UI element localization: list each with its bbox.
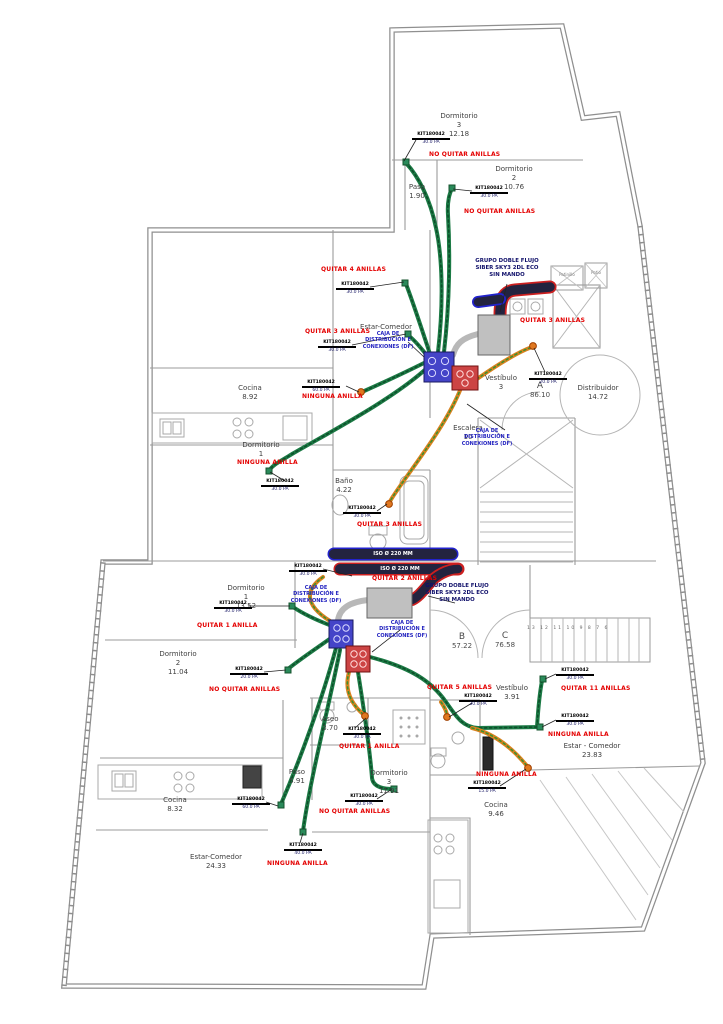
ring-annotation: NO QUITAR ANILLAS (319, 808, 390, 815)
ring-annotation: QUITAR 4 ANILLAS (321, 266, 386, 273)
pressure-tag: KIT18004260.0 PA (302, 380, 340, 393)
shaft-label: Patio (591, 270, 601, 275)
pressure-tag: KIT18004230.0 PA (345, 794, 383, 807)
distribution-box-label: CAJA DEDISTRIBUCIÓN ECONEXIONES (DF) (291, 585, 342, 604)
pressure-tag: KIT18004215.0 PA (468, 781, 506, 794)
pressure-tag: KIT18004230.0 PA (556, 668, 594, 681)
room-label-estar-b: Estar-Comedor24.33 (190, 853, 242, 871)
room-label-paso-a: Paso1.90 (409, 183, 425, 201)
pressure-tag: KIT18004230.0 PA (289, 564, 327, 577)
room-label-paso-b: Paso5.91 (289, 768, 305, 786)
ring-annotation: QUITAR 5 ANILLAS (427, 684, 492, 691)
room-label-bano-a: Baño4.22 (335, 477, 353, 495)
ring-annotation: NINGUNA ANILLA (548, 731, 609, 738)
room-label-cocina-a: Cocina8.92 (238, 384, 262, 402)
pressure-tag: KIT18004230.0 PA (412, 132, 450, 145)
ring-annotation: NINGUNA ANILLA (237, 459, 298, 466)
unit-label-top: GRUPO DOBLE FLUJOSIBER SKY3 2DL ECOSIN M… (475, 258, 538, 279)
room-label-dormitorio1-a: Dormitorio1 (242, 441, 279, 459)
unit-label-bottom: GRUPO DOBLE FLUJOSIBER SKY3 2DL ECOSIN M… (425, 583, 488, 604)
pressure-tag: KIT18004220.0 PA (529, 372, 567, 385)
distribution-box-label: CAJA DEDISTRIBUCIÓN ECONEXIONES (DF) (462, 428, 513, 447)
pressure-tag: KIT18004230.0 PA (343, 506, 381, 519)
pressure-tag: KIT18004240.0 PA (284, 843, 322, 856)
ring-annotation: NINGUNA ANILLA (267, 860, 328, 867)
room-label-vestibulo-a: Vestíbulo3 (485, 374, 517, 392)
room-label-vestibulo-c: Vestíbulo3.91 (496, 684, 528, 702)
ring-annotation: QUITAR 1 ANILLA (339, 743, 400, 750)
stair-tread-numbers: 13 12 11 10 9 8 7 6 (527, 626, 609, 631)
pressure-tag: KIT18004230.0 PA (459, 694, 497, 707)
floor-plan: Dormitorio312.18 Dormitorio210.76 Paso1.… (0, 0, 723, 1024)
pressure-tag: KIT18004220.0 PA (230, 667, 268, 680)
ring-annotation: QUITAR 2 ANILLAS (372, 575, 437, 582)
unit-top (478, 315, 510, 355)
room-label-aseo-b: Aseo3.70 (321, 715, 338, 733)
ring-annotation: NO QUITAR ANILLAS (429, 151, 500, 158)
room-label-cocina-b: Cocina8.32 (163, 796, 187, 814)
unit-bottom (367, 588, 412, 618)
vertical-shaft (483, 737, 493, 770)
apartment-marker-c: C76.58 (495, 631, 515, 649)
room-label-dormitorio3-b: Dormitorio311.91 (370, 769, 407, 796)
ring-annotation: QUITAR 3 ANILLAS (357, 521, 422, 528)
pressure-tag: KIT18004230.0 PA (470, 186, 508, 199)
pressure-tag: KIT18004230.0 PA (343, 727, 381, 740)
pressure-tag: KIT18004230.0 PA (261, 479, 299, 492)
room-label-dormitorio2-b: Dormitorio211.04 (159, 650, 196, 677)
room-label-cocina-c: Cocina9.46 (484, 801, 508, 819)
distribution-box-label: CAJA DEDISTRIBUCIÓN ECONEXIONES (DF) (377, 620, 428, 639)
ring-annotation: NO QUITAR ANILLAS (209, 686, 280, 693)
ring-annotation: NO QUITAR ANILLAS (464, 208, 535, 215)
pressure-tag: KIT18004230.0 PA (556, 714, 594, 727)
ring-annotation: QUITAR 3 ANILLAS (305, 328, 370, 335)
apartment-marker-b: B57.22 (452, 632, 472, 650)
pressure-tag: KIT18004230.0 PA (214, 601, 252, 614)
ring-annotation: QUITAR 3 ANILLAS (520, 317, 585, 324)
ring-annotation: QUITAR 1 ANILLA (197, 622, 258, 629)
pressure-tag: KIT18004260.0 PA (232, 797, 270, 810)
pressure-tag: KIT18004230.0 PA (336, 282, 374, 295)
distribution-box-label: CAJA DEDISTRIBUCIÓN ECONEXIONES (DF) (363, 331, 414, 350)
shaft-label: Patinillo (559, 272, 575, 277)
room-label-estar-c: Estar - Comedor23.83 (564, 742, 621, 760)
ring-annotation: NINGUNA ANILLA (302, 393, 363, 400)
ring-annotation: NINGUNA ANILLA (476, 771, 537, 778)
insulated-duct-label: ISO Ø 220 MM (380, 566, 420, 572)
insulated-duct-label: ISO Ø 220 MM (373, 551, 413, 557)
room-label-distribuidor: Distribuidor14.72 (578, 384, 619, 402)
ring-annotation: QUITAR 11 ANILLAS (561, 685, 631, 692)
pressure-tag: KIT18004230.0 PA (318, 340, 356, 353)
